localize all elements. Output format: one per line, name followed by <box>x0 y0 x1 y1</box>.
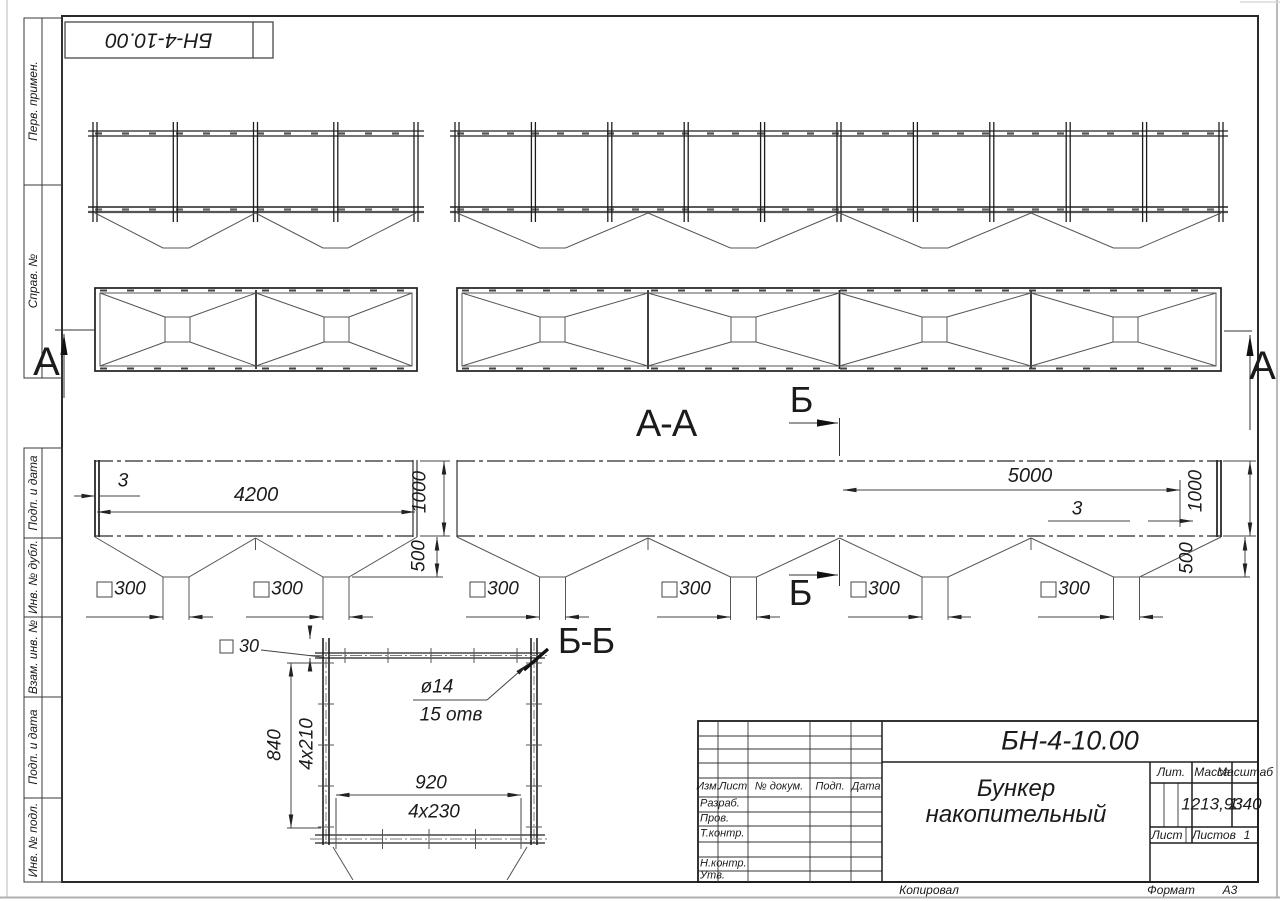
dim-aa-right-wall: 3 <box>1072 500 1083 519</box>
dim-aa-right-length: 5000 <box>1008 466 1053 486</box>
dim-bb-holes-count: 15 отв <box>420 706 483 725</box>
dim-aa-right-outlet-2: 300 <box>679 580 711 599</box>
margin-label-podp-data-1: Подп. и дата <box>27 455 39 530</box>
footer-format-label: Формат <box>1147 884 1195 896</box>
dim-bb-pitch-h: 4x230 <box>408 803 460 822</box>
cut-label-b-top: Б <box>790 382 813 418</box>
plan-right <box>457 288 1221 371</box>
dim-bb-pitch-v: 4x210 <box>298 718 317 770</box>
cut-label-b-bottom: Б <box>789 575 812 611</box>
titleblock-row-prov: Пров. <box>700 814 729 825</box>
dim-bb-angle: 30 <box>239 637 259 655</box>
titleblock-col-data: Дата <box>851 782 880 793</box>
page-edges <box>0 0 1280 898</box>
margin-label-podp-data-2: Подп. и дата <box>27 709 39 784</box>
titleblock-scale-label: Масштаб <box>1217 766 1273 778</box>
titleblock-scale-value: 1:40 <box>1228 796 1261 813</box>
cut-label-a-right: А <box>1249 346 1275 386</box>
dim-aa-left-length: 4200 <box>234 485 279 505</box>
elevation-right <box>450 122 1228 248</box>
dim-aa-left-wall: 3 <box>118 472 129 491</box>
titleblock-row-utv: Утв. <box>700 871 725 882</box>
margin-label-inv-dubl: Инв. № дубл. <box>27 540 39 614</box>
titleblock-sheets-label: Листов <box>1192 829 1236 841</box>
dim-aa-right-outlet-1: 300 <box>487 580 519 599</box>
titleblock-sheets-value: 1 <box>1244 829 1251 841</box>
section-aa-right <box>457 418 1256 620</box>
elevation-left <box>88 122 424 248</box>
dim-aa-right-hopper: 500 <box>1178 542 1197 574</box>
footer-kopiroval: Копировал <box>899 884 959 896</box>
margin-label-vzam-inv: Взам. инв. № <box>27 620 39 694</box>
dim-bb-hole: ø14 <box>421 678 454 697</box>
section-aa-title: А-А <box>636 405 696 443</box>
titleblock-doc-number: БН-4-10.00 <box>1001 728 1139 755</box>
dim-aa-right-outlet-4: 300 <box>1058 580 1090 599</box>
titleblock-sheet-label: Лист <box>1152 829 1183 841</box>
titleblock-name-line1: Бункер <box>977 777 1055 801</box>
dim-bb-width: 920 <box>415 774 447 793</box>
titleblock-row-tkontr: Т.контр. <box>700 829 744 840</box>
cut-marker-a-right <box>1224 331 1252 430</box>
section-bb-title: Б-Б <box>558 623 614 659</box>
dim-aa-right-height: 1000 <box>1187 470 1206 512</box>
margin-label-sprav-no: Справ. № <box>27 254 39 309</box>
top-stamp-doc-number: БН-4-10.00 <box>105 30 212 51</box>
footer-format-value: А3 <box>1223 884 1238 896</box>
cut-label-a-left: А <box>33 342 59 382</box>
titleblock-row-nkontr: Н.контр. <box>700 859 747 870</box>
titleblock-col-podp: Подп. <box>815 782 844 793</box>
drawing-sheet: БН-4-10.00 Перв. примен. Справ. № Подп. … <box>0 0 1280 901</box>
titleblock-name-line2: накопительный <box>926 803 1107 827</box>
titleblock-lit-label: Лит. <box>1157 766 1185 778</box>
titleblock-col-izm: Изм. <box>696 782 719 793</box>
dim-aa-left-height: 1000 <box>411 471 430 513</box>
dim-aa-left-hopper: 500 <box>410 540 429 572</box>
titleblock-row-razrab: Разраб. <box>700 799 740 810</box>
drawing-linework <box>0 0 1280 901</box>
dim-bb-total-height: 840 <box>266 729 285 761</box>
titleblock-col-doc: № докум. <box>755 782 803 793</box>
plan-left <box>95 288 417 371</box>
margin-label-inv-podl: Инв. № подл. <box>27 803 39 877</box>
dim-aa-left-outlet-1: 300 <box>114 580 146 599</box>
titleblock-col-list: Лист <box>719 782 747 793</box>
dim-aa-left-outlet-2: 300 <box>271 580 303 599</box>
dim-aa-right-outlet-3: 300 <box>868 580 900 599</box>
margin-label-perv-primen: Перв. примен. <box>27 61 39 141</box>
